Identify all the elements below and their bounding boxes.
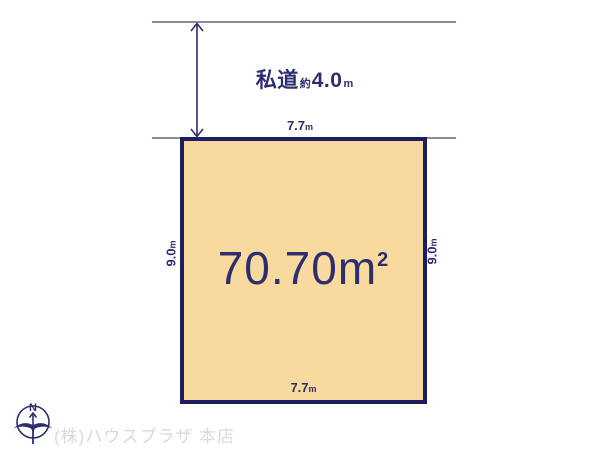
land-plot-diagram: 私道 約 4.0 m 7.7m 70.70m2 7.7m 9.0m 9.0m N… [0,0,600,450]
plot-area-label: 70.70m2 [218,241,390,295]
north-compass-icon: N [11,396,57,448]
road-width-unit: m [343,78,353,90]
plot-left-depth-label: 9.0m [164,232,181,276]
road-width-arrow [191,24,203,137]
plot-right-depth-label: 9.0m [425,230,442,274]
road-name: 私道 [256,64,299,94]
road-width-value: 4.0 [312,69,343,93]
arrowhead-up-icon [191,24,203,32]
plot-top-width-label: 7.7m [270,118,330,133]
plot-parcel: 70.70m2 7.7m [180,137,427,404]
road-label: 私道 約 4.0 m [235,64,375,94]
arrowhead-down-icon [191,129,203,137]
plot-bottom-width-label: 7.7m [184,380,423,395]
company-watermark: (株)ハウスプラザ 本店 [54,422,235,447]
road-approx-prefix: 約 [300,75,311,91]
